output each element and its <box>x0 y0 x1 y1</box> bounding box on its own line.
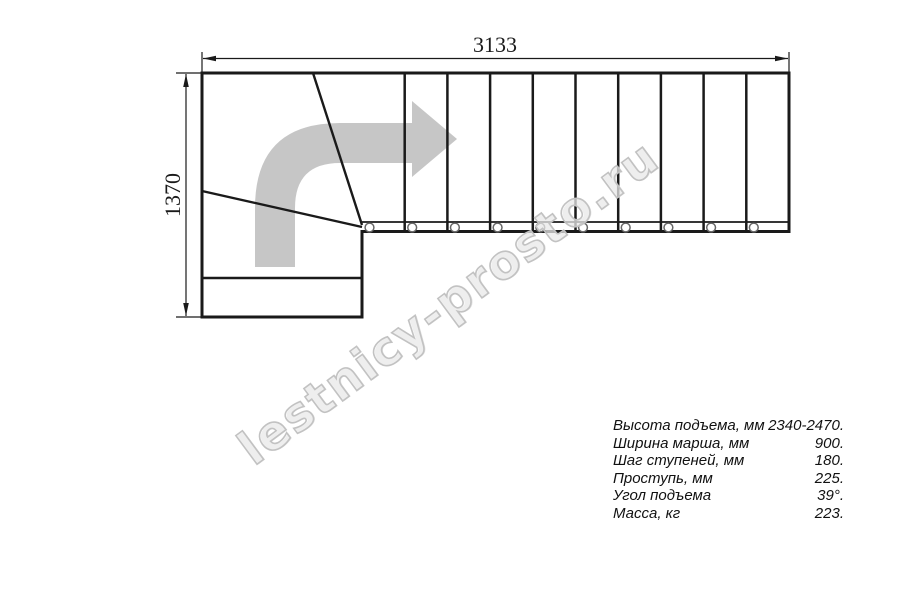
dim-arrow-right-icon <box>775 56 788 62</box>
step-lines <box>405 73 747 232</box>
spec-row-step-pitch: Шаг ступеней, мм 180. <box>613 452 844 470</box>
spec-value: 900. <box>815 435 844 453</box>
bolt-circle <box>749 223 758 232</box>
spec-value: 225. <box>815 470 844 488</box>
spec-row-mass: Масса, кг 223. <box>613 505 844 523</box>
spec-label: Масса, кг <box>613 505 680 523</box>
direction-arrow-icon <box>255 101 457 267</box>
spec-label: Ширина марша, мм <box>613 435 749 453</box>
spec-value: 39°. <box>817 487 844 505</box>
spec-label: Шаг ступеней, мм <box>613 452 744 470</box>
spec-row-angle: Угол подъема 39°. <box>613 487 844 505</box>
bolt-circle <box>451 223 460 232</box>
bolt-circle <box>493 223 502 232</box>
spec-label: Проступь, мм <box>613 470 713 488</box>
spec-value: 223. <box>815 505 844 523</box>
spec-row-tread: Проступь, мм 225. <box>613 470 844 488</box>
bolt-circle <box>707 223 716 232</box>
spec-value: 180. <box>815 452 844 470</box>
spec-row-flight-width: Ширина марша, мм 900. <box>613 435 844 453</box>
bolt-circle <box>365 223 374 232</box>
dimension-height-label: 1370 <box>160 173 185 217</box>
bolt-circle <box>536 223 545 232</box>
bolt-circle <box>408 223 417 232</box>
dim-arrow-left-icon <box>203 56 216 62</box>
spec-value: 2340-2470. <box>768 417 844 435</box>
blueprint-page: 3133 1370 lestnicy-prosto.ru Высота подъ… <box>0 0 900 600</box>
spec-row-height: Высота подъема, мм 2340-2470. <box>613 417 844 435</box>
spec-label: Угол подъема <box>613 487 711 505</box>
spec-table: Высота подъема, мм 2340-2470. Ширина мар… <box>613 417 844 522</box>
spec-label: Высота подъема, мм <box>613 417 765 435</box>
bolt-circle <box>664 223 673 232</box>
dim-arrow-up-icon <box>183 74 189 87</box>
dimension-width-label: 3133 <box>473 32 517 57</box>
bolt-circle <box>621 223 630 232</box>
bolt-circle <box>579 223 588 232</box>
dim-arrow-down-icon <box>183 303 189 316</box>
